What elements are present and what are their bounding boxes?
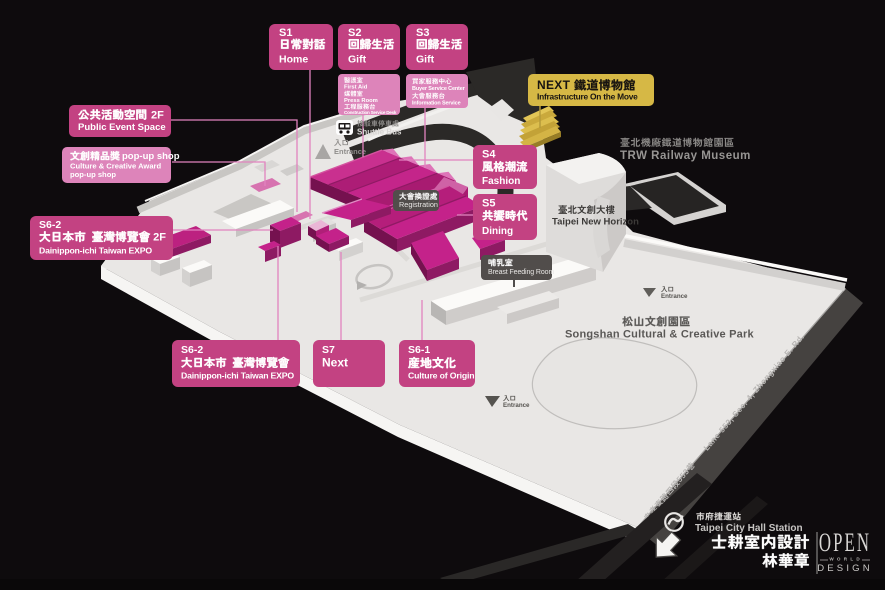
svg-text:pop-up shop: pop-up shop xyxy=(122,151,180,162)
svg-text:Next: Next xyxy=(322,355,348,369)
svg-text:Taipei City Hall Station: Taipei City Hall Station xyxy=(695,523,803,534)
svg-text:Shuttle Bus: Shuttle Bus xyxy=(357,128,402,137)
svg-text:S6-1: S6-1 xyxy=(408,344,430,356)
svg-text:DESIGN: DESIGN xyxy=(817,563,873,574)
svg-text:Infrastructure On the Move: Infrastructure On the Move xyxy=(537,92,638,102)
svg-text:Gift: Gift xyxy=(348,54,367,66)
svg-text:Fashion: Fashion xyxy=(482,176,520,187)
svg-text:S6-2: S6-2 xyxy=(181,344,203,356)
svg-text:S7: S7 xyxy=(322,344,335,356)
svg-text:First Aid: First Aid xyxy=(344,85,368,91)
svg-text:S5: S5 xyxy=(482,198,495,210)
svg-text:Entrance: Entrance xyxy=(334,147,366,156)
svg-text:OPEN: OPEN xyxy=(819,527,871,557)
svg-text:Information Service: Information Service xyxy=(412,100,461,106)
svg-text:Press Room: Press Room xyxy=(344,98,378,104)
svg-text:TRW Railway Museum: TRW Railway Museum xyxy=(620,150,751,162)
svg-text:S6-2: S6-2 xyxy=(39,219,61,231)
svg-text:Dainippon-ichi Taiwan EXPO: Dainippon-ichi Taiwan EXPO xyxy=(181,370,294,380)
svg-text:S1: S1 xyxy=(279,27,292,39)
svg-text:2F: 2F xyxy=(151,110,164,122)
svg-text:Taipei New Horizon: Taipei New Horizon xyxy=(552,216,639,227)
svg-text:Public Event Space: Public Event Space xyxy=(78,122,166,133)
svg-text:Dining: Dining xyxy=(482,226,513,237)
svg-text:Culture of Origin: Culture of Origin xyxy=(408,370,474,380)
svg-text:S3: S3 xyxy=(416,27,429,39)
svg-text:W O R L D: W O R L D xyxy=(829,557,860,562)
svg-text:Entrance: Entrance xyxy=(661,293,688,300)
svg-text:Construction Service Desk: Construction Service Desk xyxy=(344,110,397,115)
svg-text:Home: Home xyxy=(279,54,308,66)
svg-text:Breast Feeding Room: Breast Feeding Room xyxy=(488,269,554,276)
svg-text:S4: S4 xyxy=(482,149,496,161)
svg-text:S2: S2 xyxy=(348,27,361,39)
svg-text:Songshan Cultural & Creative P: Songshan Cultural & Creative Park xyxy=(565,329,754,341)
svg-text:2F: 2F xyxy=(153,232,166,244)
svg-text:NEXT: NEXT xyxy=(537,78,571,92)
svg-text:pop-up shop: pop-up shop xyxy=(70,170,116,179)
svg-text:Gift: Gift xyxy=(416,54,435,66)
svg-text:Entrance: Entrance xyxy=(503,402,530,409)
svg-text:Buyer Service Center: Buyer Service Center xyxy=(412,86,466,92)
svg-text:Dainippon-ichi Taiwan EXPO: Dainippon-ichi Taiwan EXPO xyxy=(39,245,152,255)
svg-text:Registration: Registration xyxy=(399,200,438,209)
